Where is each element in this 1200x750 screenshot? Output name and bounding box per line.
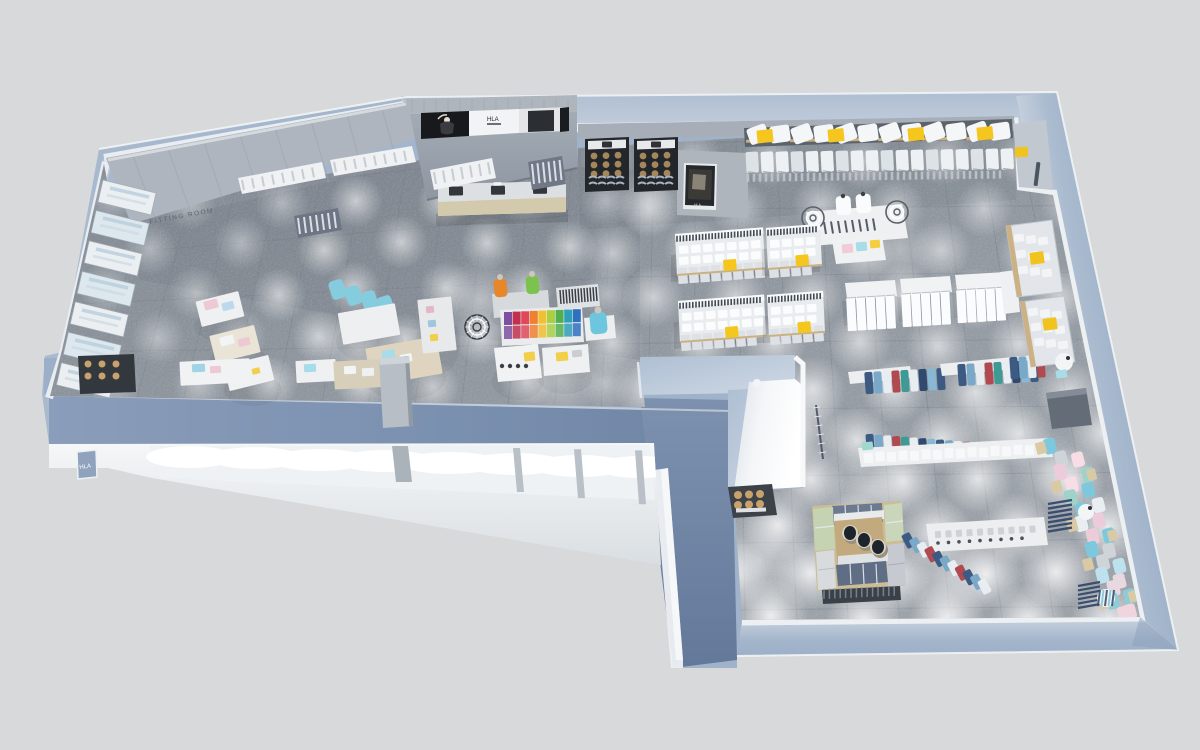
svg-text:HLA: HLA (487, 117, 499, 123)
svg-text:HLA: HLA (694, 203, 701, 207)
